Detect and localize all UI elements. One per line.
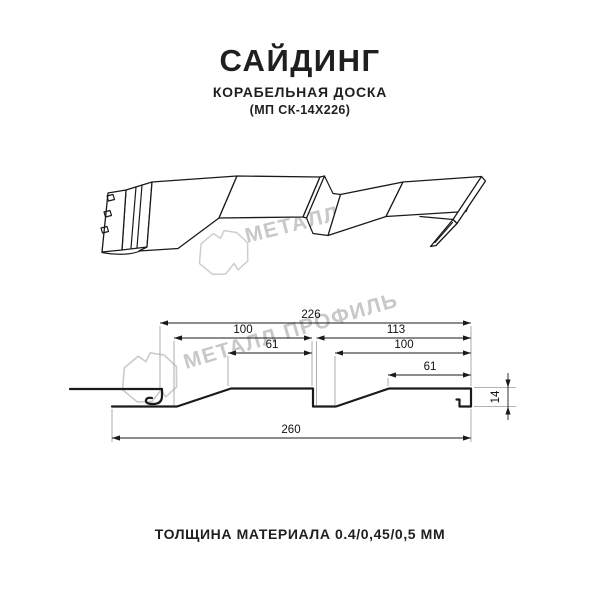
dimension-label-226: 226 — [301, 309, 320, 321]
dimension-line-61-right: 61 — [388, 361, 471, 378]
notch-far-edge — [325, 176, 341, 195]
thickness-note: ТОЛЩИНА МАТЕРИАЛА 0.4/0,45/0,5 ММ — [0, 526, 600, 542]
watermark-text: МЕТАЛЛ ПРОФИЛЬ — [181, 288, 401, 373]
dimension-line-226: 226 — [160, 309, 471, 326]
dimension-label-61-right: 61 — [424, 361, 437, 373]
adjacent-panel-edge — [70, 389, 162, 396]
end-hook-fold — [435, 223, 453, 243]
dimension-label-100-right: 100 — [394, 339, 413, 351]
dimension-label-100-left: 100 — [233, 324, 252, 336]
dimension-line-14: 14 — [490, 373, 511, 420]
product-drawing-page: САЙДИНГ КОРАБЕЛЬНАЯ ДОСКА (МП СК-14Х226)… — [0, 0, 600, 600]
bottom-near-edge — [420, 217, 453, 220]
drawing-canvas: МЕТАЛЛ ПРОФИЛЬ — [0, 0, 600, 600]
dimension-label-61-left: 61 — [266, 339, 279, 351]
dimension-label-113: 113 — [387, 324, 405, 336]
dimension-label-14: 14 — [490, 390, 502, 403]
profile-3d-view — [101, 176, 486, 254]
dimension-line-260: 260 — [112, 424, 471, 441]
watermark-logo-icon — [195, 227, 253, 278]
dimension-label-260: 260 — [281, 424, 300, 436]
dimension-line-100-right: 100 — [335, 339, 471, 356]
